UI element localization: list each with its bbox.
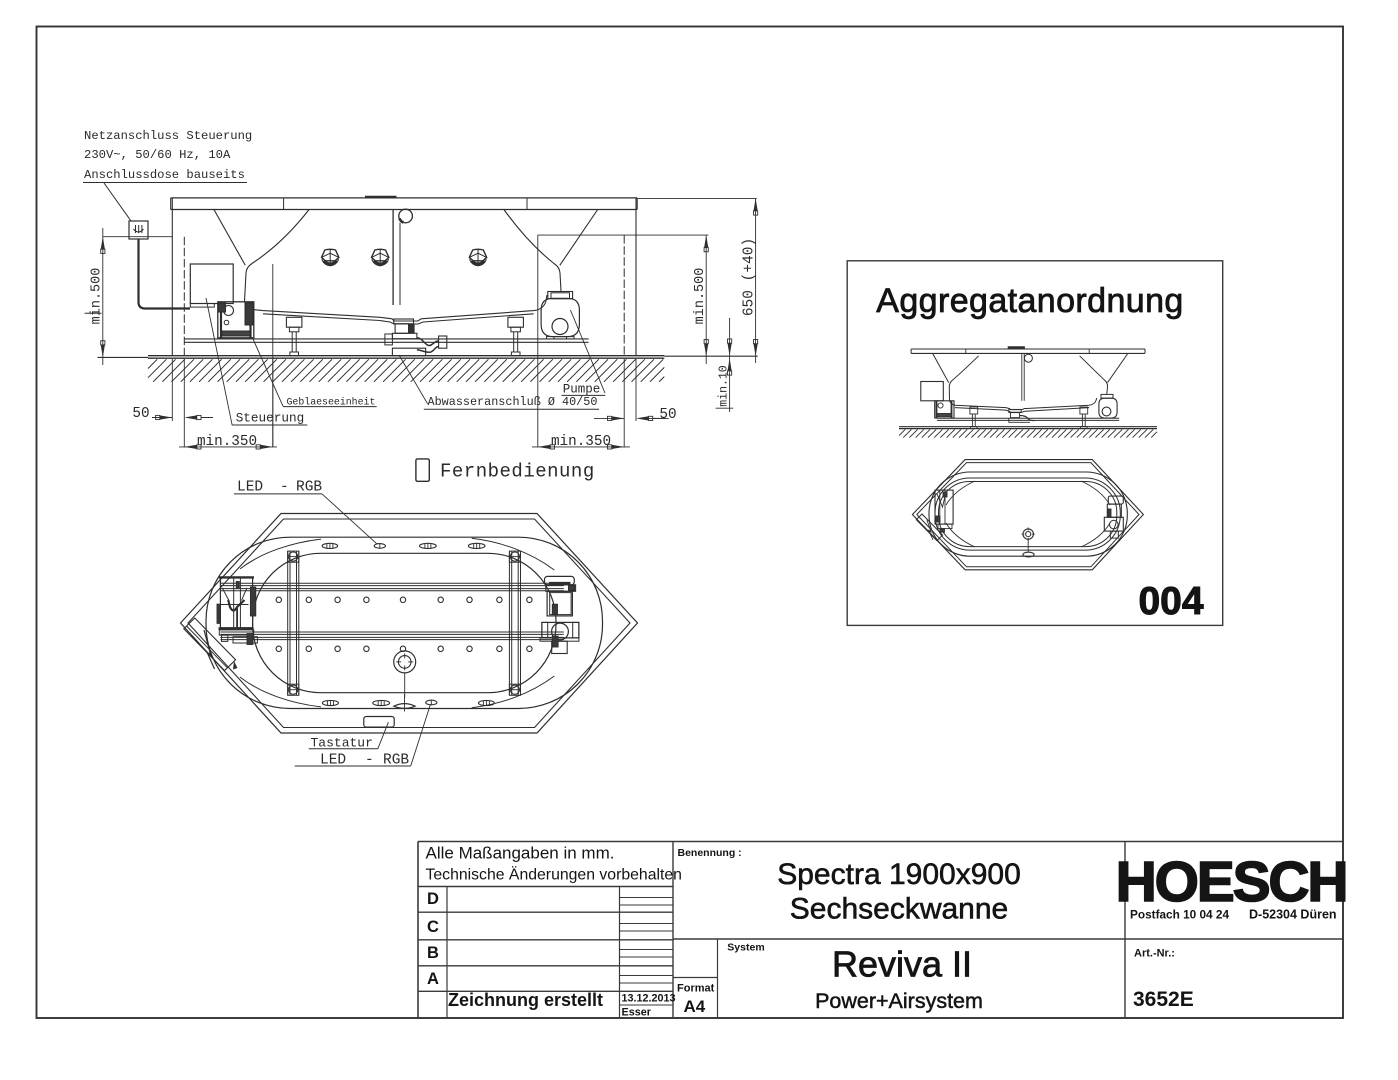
svg-text:Steuerung: Steuerung [236, 411, 305, 426]
svg-text:13.12.2013: 13.12.2013 [622, 993, 676, 1005]
svg-text:004: 004 [1138, 580, 1203, 623]
svg-text:50: 50 [659, 407, 676, 423]
svg-text:Spectra 1900x900: Spectra 1900x900 [777, 858, 1021, 891]
svg-text:Benennung :: Benennung : [678, 847, 742, 859]
svg-text:Pumpe: Pumpe [563, 382, 601, 396]
svg-text:Aggregatanordnung: Aggregatanordnung [876, 282, 1183, 320]
svg-text:A4: A4 [684, 997, 706, 1016]
svg-text:min.350: min.350 [551, 434, 611, 450]
svg-text:System: System [727, 942, 764, 954]
svg-text:HOESCH: HOESCH [1116, 850, 1347, 914]
svg-text:Fernbedienung: Fernbedienung [440, 461, 595, 483]
svg-text:Tastatur: Tastatur [311, 736, 373, 751]
svg-text:Anschlussdose bauseits: Anschlussdose bauseits [84, 168, 245, 182]
svg-text:min.10: min.10 [718, 365, 731, 407]
svg-text:Zeichnung erstellt: Zeichnung erstellt [448, 990, 603, 1010]
svg-text:Format: Format [677, 983, 715, 995]
svg-text:Art.-Nr.:: Art.-Nr.: [1134, 948, 1175, 960]
svg-text:B: B [427, 944, 439, 962]
svg-text:3652E: 3652E [1133, 988, 1194, 1011]
svg-text:A: A [427, 970, 439, 988]
svg-text:D: D [427, 890, 439, 908]
svg-text:min.500: min.500 [693, 268, 708, 325]
svg-text:Reviva II: Reviva II [832, 944, 972, 985]
svg-text:Geblaeseeinheit: Geblaeseeinheit [287, 396, 376, 407]
svg-text:Esser: Esser [622, 1007, 652, 1019]
svg-text:Technische Änderungen vorbehal: Technische Änderungen vorbehalten [426, 866, 682, 884]
svg-text:D-52304 Düren: D-52304 Düren [1249, 908, 1337, 922]
svg-text:650 (+40): 650 (+40) [742, 238, 758, 316]
svg-text:min.350: min.350 [197, 434, 257, 450]
svg-text:LED: LED [237, 480, 263, 496]
svg-text:Netzanschluss Steuerung: Netzanschluss Steuerung [84, 129, 252, 143]
svg-text:230V~, 50/60 Hz, 10A: 230V~, 50/60 Hz, 10A [84, 148, 231, 162]
svg-text:C: C [427, 918, 439, 936]
svg-text:min.500: min.500 [90, 268, 105, 325]
svg-text:Alle Maßangaben in mm.: Alle Maßangaben in mm. [426, 844, 615, 863]
svg-text:Sechseckwanne: Sechseckwanne [790, 893, 1008, 926]
svg-text:Postfach 10 04 24: Postfach 10 04 24 [1130, 908, 1229, 922]
svg-text:RGB: RGB [296, 480, 322, 496]
svg-text:Power+Airsystem: Power+Airsystem [815, 989, 983, 1013]
svg-text:50: 50 [132, 406, 149, 422]
svg-text:Abwasseranschluß Ø 40/50: Abwasseranschluß Ø 40/50 [428, 395, 598, 409]
svg-text:-: - [280, 480, 289, 496]
